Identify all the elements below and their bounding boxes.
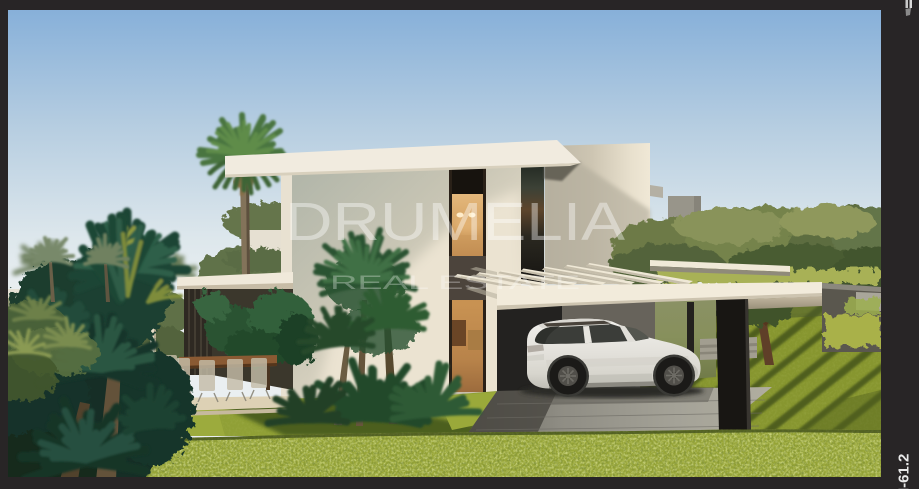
svg-text:REAL ESTATE: REAL ESTATE [330,273,580,294]
svg-text:DRUMELIA: DRUMELIA [285,192,625,252]
svg-text:I-61.2: I-61.2 [896,454,913,489]
